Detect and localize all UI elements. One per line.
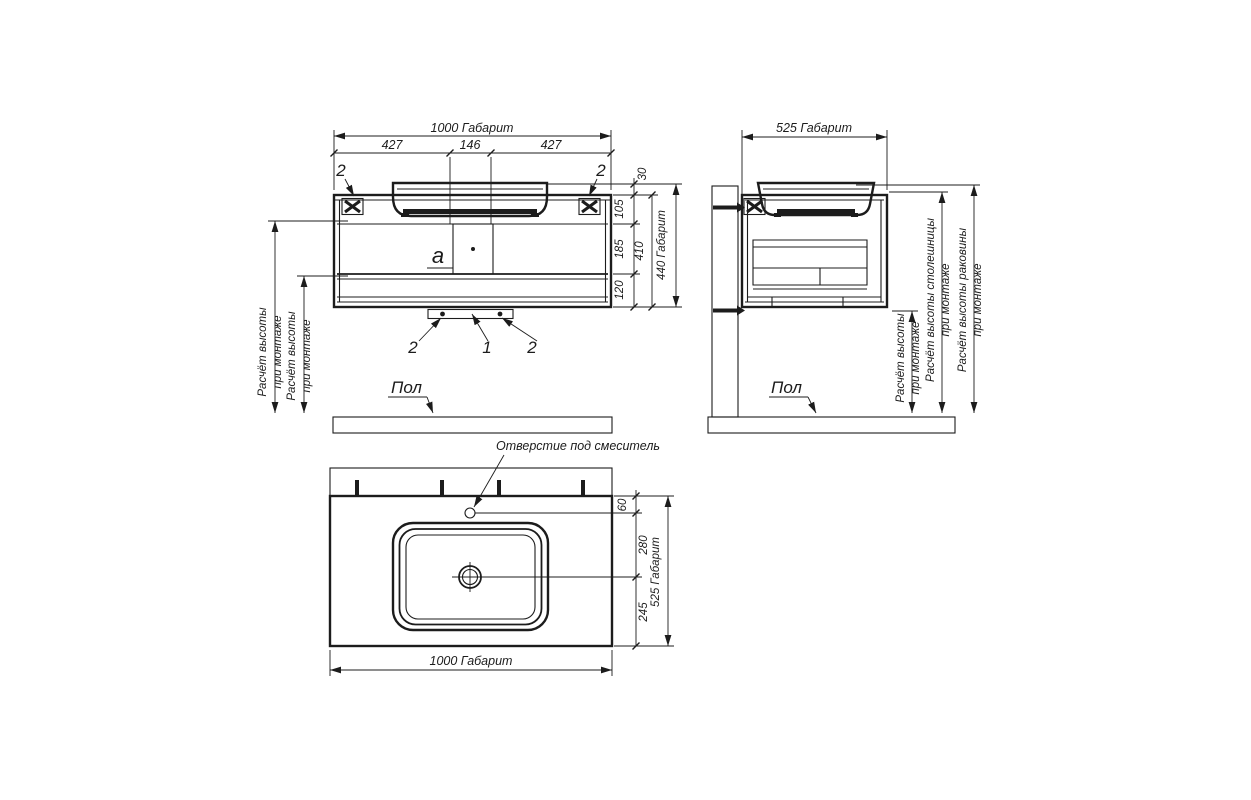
dim-525-plan: 525 Габарит	[650, 537, 662, 607]
dim-440: 440 Габарит	[656, 210, 668, 280]
countertop-note-line2: при монтаже	[940, 263, 952, 336]
faucet-hole	[465, 508, 475, 518]
dim-245: 245	[638, 602, 650, 623]
leader-bracket-right	[589, 179, 597, 196]
basin-side-foot-left	[774, 213, 781, 217]
basin-foot-left	[401, 213, 409, 217]
bottom-rail-screw-right	[498, 312, 503, 317]
front-view: Пол 1000 Габарит 427 146 427 30 105 185 …	[257, 121, 682, 433]
dim-427-left: 427	[382, 138, 404, 152]
faucet-hole-callout: Отверстие под смеситель	[496, 439, 660, 453]
mount-note-2-line1: Расчёт высоты	[286, 311, 298, 401]
floor-hatch-front	[333, 417, 612, 433]
dim-1000-plan: 1000 Габарит	[430, 654, 513, 668]
floor-label-side: Пол	[771, 378, 802, 397]
ext-lines-plan-right	[614, 496, 674, 646]
basin-side-foot-right	[851, 213, 858, 217]
mount-note-2-line2: при монтаже	[301, 319, 313, 392]
leader-leg-right	[502, 318, 537, 341]
wall-anchor-top	[713, 203, 745, 213]
mount-note-1-line1: Расчёт высоты	[257, 307, 269, 397]
callout-siphon: 1	[482, 338, 491, 357]
floor-leader-front	[427, 397, 433, 413]
side-mount-note-line2: при монтаже	[910, 321, 922, 394]
wall-hatch-plan	[330, 468, 612, 496]
dim-410: 410	[634, 241, 646, 261]
callout-leg-right: 2	[526, 338, 537, 357]
callout-bracket-right: 2	[595, 161, 606, 180]
dim-1000-front: 1000 Габарит	[431, 121, 514, 135]
side-mount-note-line1: Расчёт высоты	[895, 313, 907, 403]
callout-bracket-left: 2	[335, 161, 346, 180]
basin-foot-right	[531, 213, 539, 217]
panel-center-dot	[471, 247, 475, 251]
wall-bracket-mark-1	[355, 480, 359, 496]
bottom-rail-screw-left	[440, 312, 445, 317]
mount-note-1-line2: при монтаже	[272, 315, 284, 388]
callout-leg-left: 2	[407, 338, 418, 357]
wall-bracket-mark-4	[581, 480, 585, 496]
sink-note-line2: при монтаже	[972, 263, 984, 336]
dim-427-right: 427	[541, 138, 563, 152]
dim-185: 185	[614, 239, 626, 259]
side-view: Пол 525 Габарит Расчёт высоты при монтаж…	[708, 121, 984, 433]
wall-hatch-side	[712, 186, 738, 417]
wall-bracket-mark-3	[497, 480, 501, 496]
leader-leg-left	[419, 318, 441, 341]
ext-lines-left-front	[268, 221, 348, 276]
dim-60: 60	[617, 498, 629, 511]
dim-525-side: 525 Габарит	[776, 121, 852, 135]
countertop-outline	[330, 496, 612, 646]
dim-105: 105	[614, 199, 626, 219]
ext-lines-top-side	[742, 130, 887, 218]
leader-bracket-left	[345, 179, 354, 196]
mounting-bracket-left	[342, 199, 363, 215]
countertop-note-line1: Расчёт высоты столешницы	[925, 217, 937, 381]
callout-panel: а	[432, 243, 444, 268]
floor-leader-side	[808, 397, 816, 413]
sink-bowl-outer	[393, 523, 548, 630]
dim-280: 280	[638, 535, 650, 556]
drawing-canvas: Пол 1000 Габарит 427 146 427 30 105 185 …	[0, 0, 1251, 800]
drawer-section	[753, 240, 867, 289]
technical-drawing-vanity: Пол 1000 Габарит 427 146 427 30 105 185 …	[0, 0, 1251, 800]
dim-146: 146	[460, 138, 481, 152]
mounting-bracket-right	[579, 199, 600, 215]
wall-bracket-mark-2	[440, 480, 444, 496]
wall-anchor-bottom	[713, 306, 745, 316]
dim-30: 30	[637, 167, 649, 180]
plan-view: Отверстие под смеситель 60 280 245 525 Г…	[330, 439, 674, 676]
sink-note-line1: Расчёт высоты раковины	[957, 227, 969, 372]
floor-hatch-side	[708, 417, 955, 433]
floor-label-front: Пол	[391, 378, 422, 397]
dim-120: 120	[614, 280, 626, 300]
